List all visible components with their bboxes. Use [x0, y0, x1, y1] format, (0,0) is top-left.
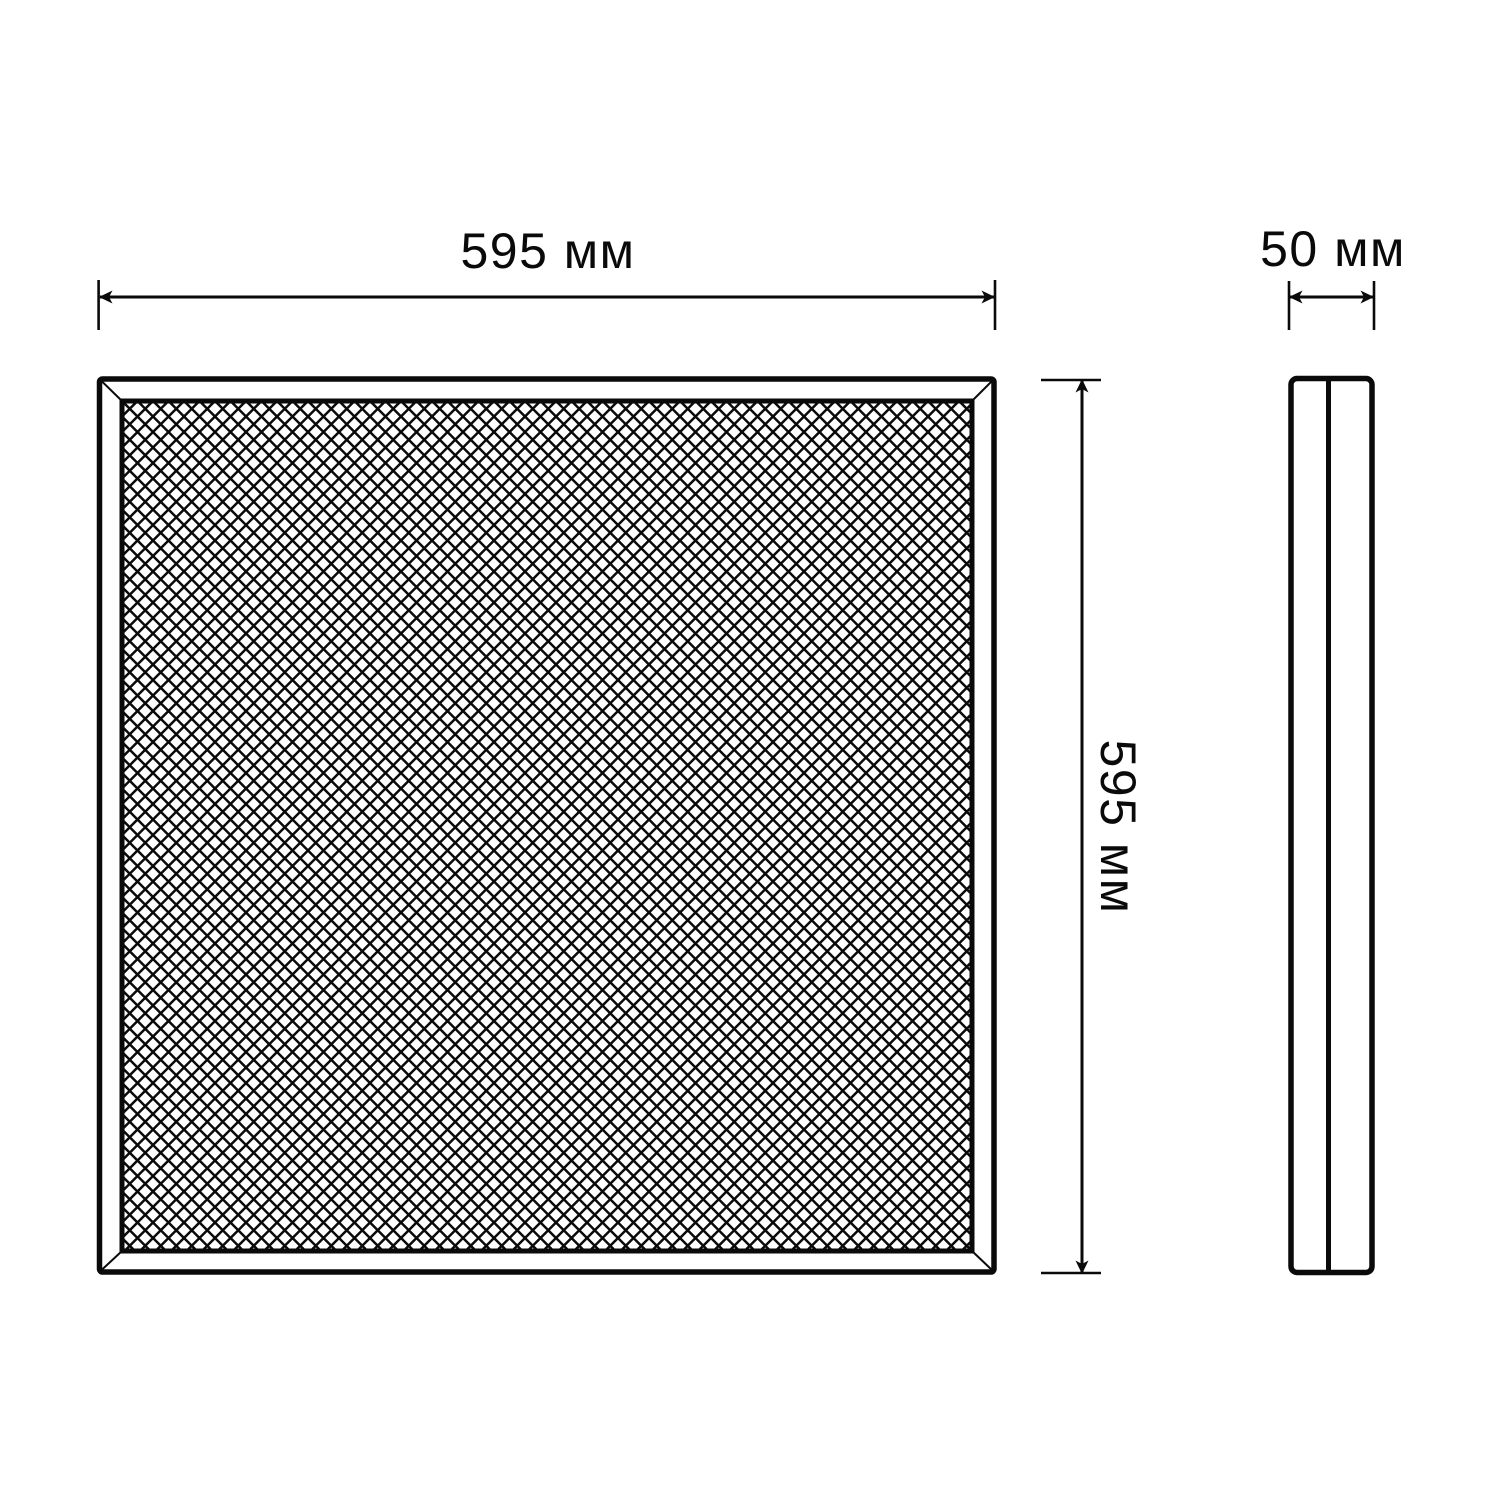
- svg-text:595 мм: 595 мм: [460, 223, 635, 279]
- svg-text:595 мм: 595 мм: [1090, 739, 1146, 914]
- svg-text:50 мм: 50 мм: [1260, 221, 1406, 277]
